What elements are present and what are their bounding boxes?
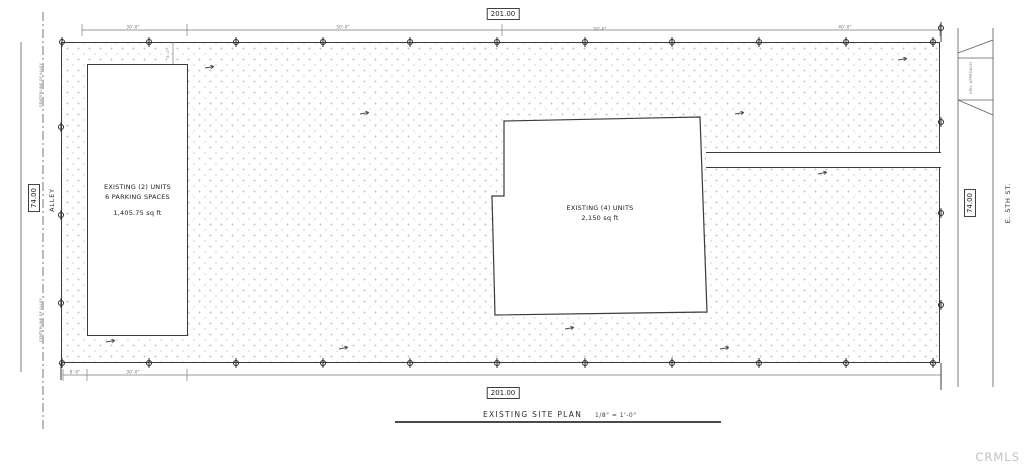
crmls-watermark: CRMLS [975, 450, 1020, 464]
dimension-segment: 30'-0" [126, 370, 139, 375]
dimension-segment: 40'-0" [838, 25, 851, 30]
driveway-approach-lines [958, 40, 993, 115]
dimension-left-overall: 74.00 [28, 184, 40, 212]
left-building-label: EXISTING (2) UNITS 6 PARKING SPACES 1,40… [104, 182, 171, 217]
street-label: E. 5TH ST. [1004, 183, 1012, 224]
main-building-area: 2,150 sq ft [567, 213, 634, 223]
dimension-segment: 8'-0" [70, 370, 80, 375]
dimension-segment: 30'-0" [126, 25, 139, 30]
alley-label: ALLEY [48, 188, 56, 212]
bottom-dimension-line [63, 369, 941, 381]
left-building-name: EXISTING (2) UNITS [104, 182, 171, 192]
property-lot [61, 42, 940, 363]
main-building-name: EXISTING (4) UNITS [567, 203, 634, 213]
dimension-segment: 50'-0" [336, 25, 349, 30]
left-building-area: 1,405.75 sq ft [104, 208, 171, 218]
left-building-parking: 6 PARKING SPACES [104, 192, 171, 202]
driveway-approach-label: VEH. APPROACH [969, 62, 973, 94]
dimension-segment: 50'-0" [593, 27, 606, 32]
alley-centerline-label: CENTERLINE OF ALLEY [39, 63, 43, 107]
left-building: EXISTING (2) UNITS 6 PARKING SPACES 1,40… [87, 64, 188, 336]
setback-dimension-label: 5'-0" [166, 48, 170, 58]
dimension-bottom-overall: 201.00 [487, 387, 520, 399]
plan-title: EXISTING SITE PLAN [483, 410, 582, 419]
site-plan-canvas: EXISTING (2) UNITS 6 PARKING SPACES 1,40… [0, 0, 1024, 468]
alley-centerline-label: CENTERLINE OF ALLEY [39, 298, 43, 342]
main-building-label: EXISTING (4) UNITS 2,150 sq ft [567, 203, 634, 223]
dimension-right-overall: 74.00 [964, 189, 976, 217]
plan-scale: 1/8" = 1'-0" [595, 412, 636, 419]
top-dimension-line [82, 24, 940, 36]
title-underline [395, 421, 721, 423]
dimension-top-overall: 201.00 [487, 8, 520, 20]
